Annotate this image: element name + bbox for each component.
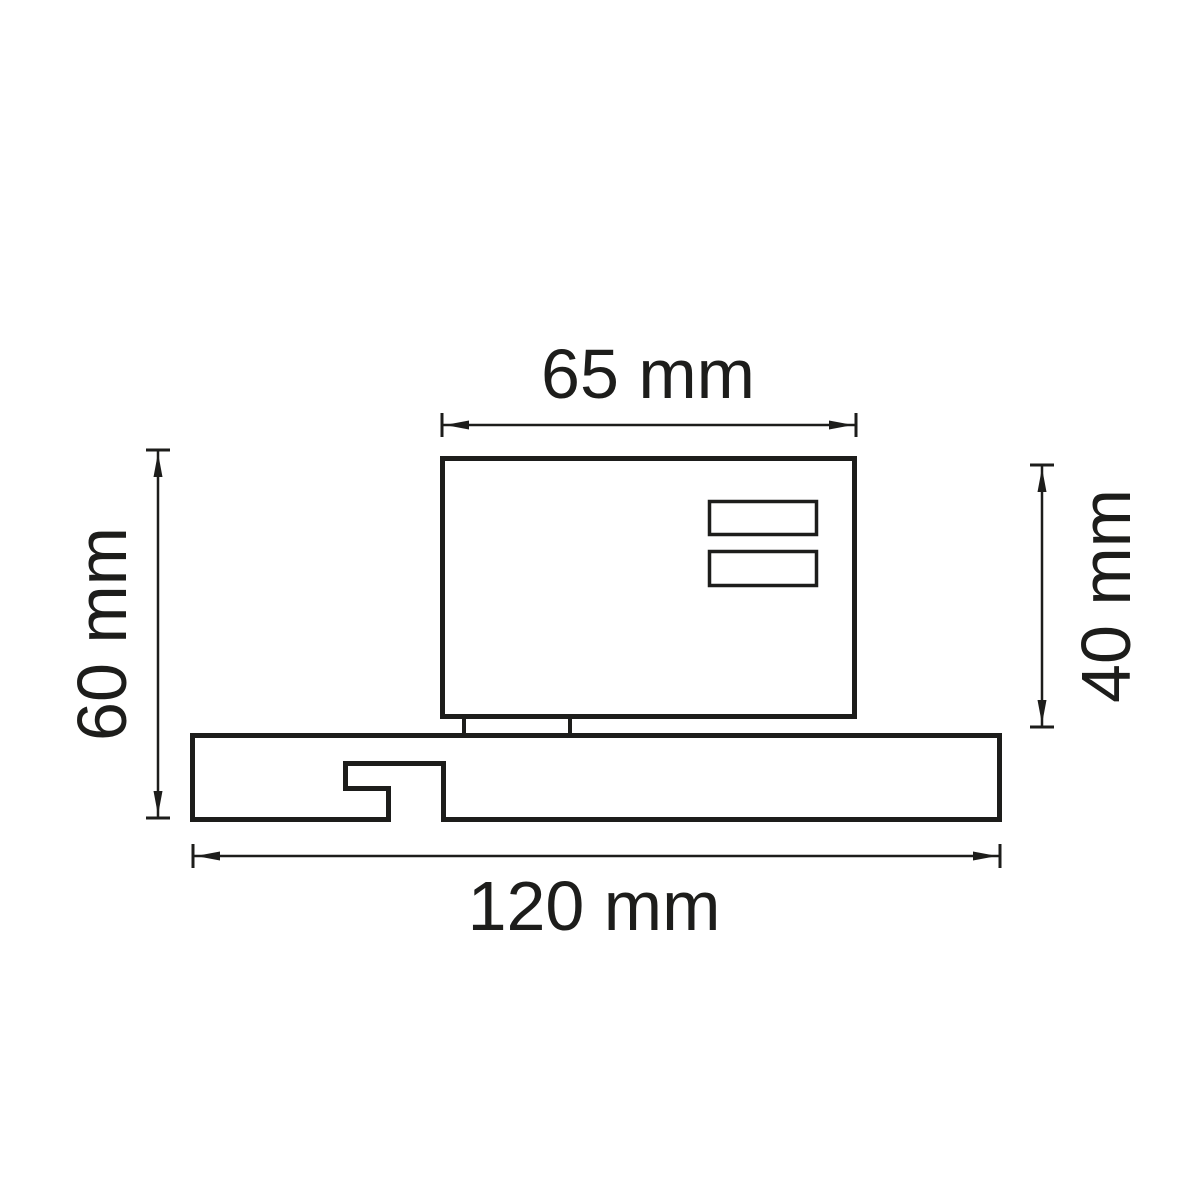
track-base bbox=[193, 736, 1000, 820]
dim-label-left-height: 60 mm bbox=[67, 527, 137, 741]
dim-top bbox=[442, 413, 856, 437]
track-base-outline bbox=[193, 736, 1000, 820]
dim-left-arrow-down bbox=[154, 791, 163, 815]
dim-left-arrow-up bbox=[154, 453, 163, 477]
dim-bottom-arrow-right bbox=[973, 852, 997, 861]
dimension-drawing: 65 mm 60 mm 40 mm 120 mm bbox=[0, 0, 1200, 1200]
dim-left bbox=[146, 450, 170, 818]
dim-right bbox=[1030, 465, 1054, 727]
dim-label-top-width: 65 mm bbox=[541, 339, 755, 409]
dim-bottom-arrow-left bbox=[196, 852, 220, 861]
connector-slot-top bbox=[710, 502, 817, 535]
dim-top-arrow-left bbox=[445, 421, 469, 430]
dim-label-bottom-width: 120 mm bbox=[468, 871, 721, 941]
dim-bottom bbox=[193, 844, 1000, 868]
fixture-body bbox=[443, 459, 855, 737]
dim-top-arrow-right bbox=[829, 421, 853, 430]
connector-slot-bottom bbox=[710, 552, 817, 586]
body-outline bbox=[443, 459, 855, 717]
drawing-linework bbox=[0, 0, 1200, 1200]
dim-right-arrow-up bbox=[1038, 468, 1047, 492]
dim-right-arrow-down bbox=[1038, 700, 1047, 724]
dim-label-right-height: 40 mm bbox=[1071, 489, 1141, 703]
